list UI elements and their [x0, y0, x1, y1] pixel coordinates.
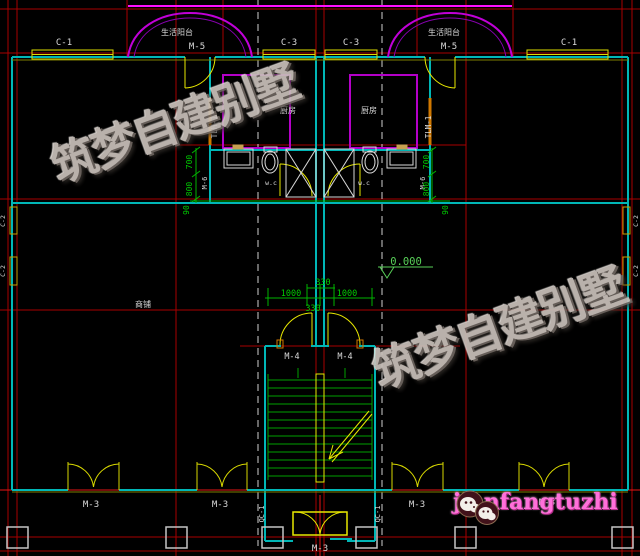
- bath-fixtures-right: [324, 145, 416, 197]
- bath-fixtures-left: [224, 145, 316, 197]
- window-label-c2-right-upper: C-2: [632, 215, 640, 227]
- window-label-c3-right: C-3: [343, 38, 359, 48]
- level-label: 0.000: [390, 256, 422, 268]
- dim-1000-right: 1000: [337, 289, 357, 299]
- dim-700-left: 700: [185, 155, 194, 170]
- windows-side: [10, 207, 630, 285]
- fixture-label-wc-right: w.c: [358, 179, 370, 187]
- room-label-kitchen-right: 厨房: [361, 105, 377, 115]
- dim-330-top: 330: [315, 278, 330, 288]
- door-label-tlm-right: TLM-1: [424, 116, 433, 139]
- wall-label-qc-right: QC-1: [374, 506, 382, 523]
- level-mark: [378, 267, 433, 278]
- window-label-c2-right-lower: C-2: [632, 265, 640, 277]
- door-label-m3-center: M-3: [312, 544, 328, 554]
- site-logo: jianfangtuzhi: [453, 489, 618, 515]
- floor-plan-image: C-1 生活阳台 M-5 C-3 C-3 生活阳台 M-5 C-1 厨房 厨房 …: [0, 0, 640, 556]
- door-label-m6-left: M-6: [201, 177, 209, 190]
- door-label-m4-right: M-4: [337, 352, 352, 362]
- door-label-m4-left: M-4: [284, 352, 299, 362]
- dim-800-left: 800: [185, 182, 194, 197]
- dim-90-right: 90: [441, 205, 450, 215]
- faucet-icon: [233, 145, 243, 149]
- stair-doors-m4: [277, 313, 363, 348]
- faucet-icon: [397, 145, 407, 149]
- stair-treads: [268, 368, 372, 480]
- window-label-c2-left-lower: C-2: [0, 265, 7, 277]
- window-label-c1-right: C-1: [561, 38, 577, 48]
- door-label-m3-1: M-3: [83, 500, 99, 510]
- dim-330-bottom: 330: [305, 304, 320, 314]
- room-label-balcony-right: 生活阳台: [428, 27, 460, 37]
- door-label-m5-right: M-5: [441, 42, 457, 52]
- wechat-badge-icons: [453, 489, 501, 531]
- dim-700-right: 700: [422, 155, 431, 170]
- door-label-m5-left: M-5: [189, 42, 205, 52]
- room-label-balcony-left: 生活阳台: [161, 27, 193, 37]
- wechat-icon-small: [476, 502, 499, 525]
- fixture-label-wc-left: w.c: [265, 179, 277, 187]
- door-label-m3-3: M-3: [409, 500, 425, 510]
- dim-800-right: 800: [422, 182, 431, 197]
- bath-doors-m6: [280, 164, 360, 196]
- room-label-shop: 商铺: [135, 299, 151, 309]
- door-label-m3-2: M-3: [212, 500, 228, 510]
- wall-label-qc-left: QC-1: [258, 506, 266, 523]
- window-label-c1-left: C-1: [56, 38, 72, 48]
- dim-1000-left: 1000: [281, 289, 301, 299]
- window-label-c2-left-upper: C-2: [0, 215, 7, 227]
- dim-90-left: 90: [182, 205, 191, 215]
